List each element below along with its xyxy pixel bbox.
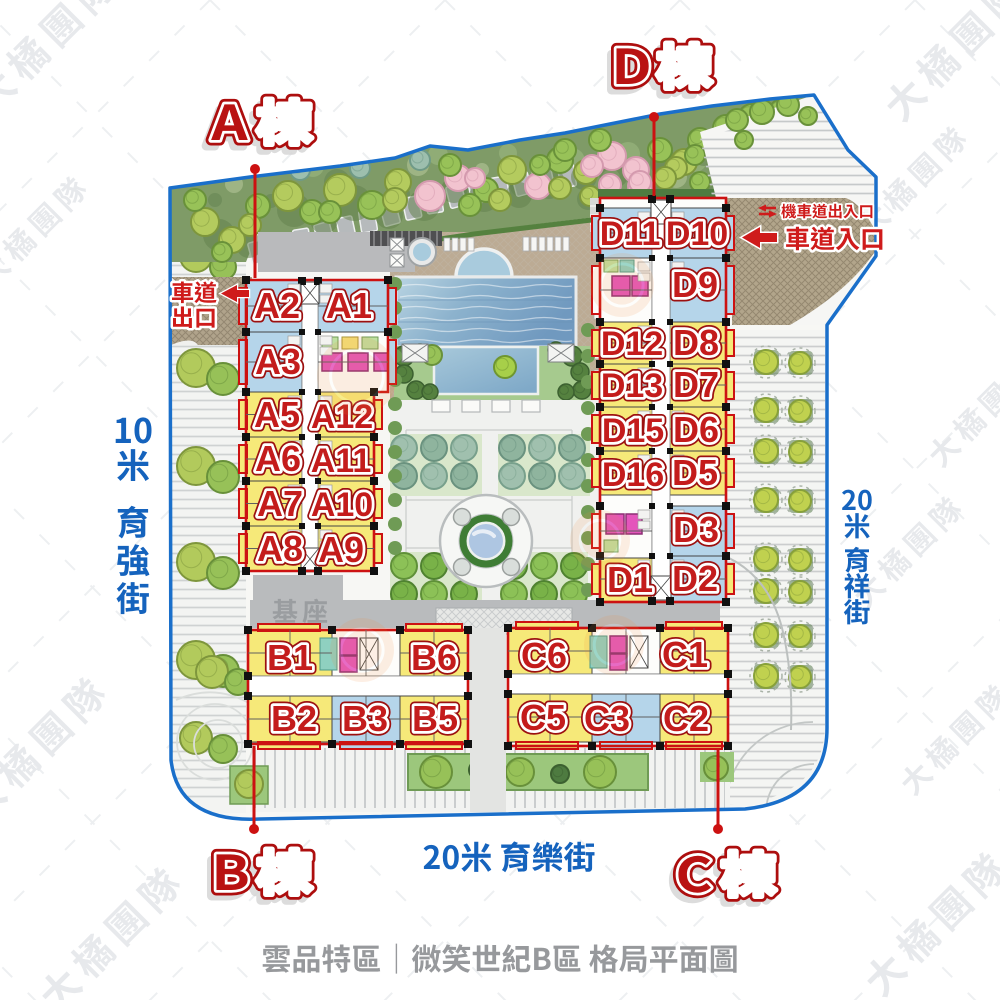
svg-text:D3: D3 [673,509,719,550]
svg-text:D2: D2 [672,558,718,599]
svg-text:D13: D13 [601,367,663,405]
svg-text:A10: A10 [311,486,373,524]
svg-text:D11: D11 [600,215,661,253]
svg-text:D16: D16 [602,456,664,494]
svg-text:D7: D7 [673,364,719,405]
svg-text:B3: B3 [342,698,388,739]
svg-text:D15: D15 [602,412,664,450]
svg-text:A2: A2 [254,285,300,326]
svg-text:B1: B1 [267,637,313,678]
svg-text:A3: A3 [255,341,301,382]
svg-text:A5: A5 [254,394,300,435]
svg-text:C6: C6 [521,635,567,676]
svg-text:A6: A6 [255,438,301,479]
svg-text:A7: A7 [257,483,303,524]
svg-text:D5: D5 [672,452,718,493]
svg-text:C3: C3 [584,698,630,739]
svg-text:D10: D10 [666,215,728,253]
svg-text:B2: B2 [271,698,317,739]
svg-text:C2: C2 [663,698,709,739]
svg-text:D6: D6 [673,409,719,450]
svg-text:C5: C5 [520,697,566,738]
svg-text:D12: D12 [601,325,663,363]
svg-text:D8: D8 [673,322,719,363]
svg-text:D9: D9 [672,264,718,305]
svg-text:A11: A11 [311,442,372,480]
svg-text:B6: B6 [411,637,457,678]
svg-text:C1: C1 [662,634,708,675]
svg-text:A1: A1 [326,285,372,326]
svg-text:B5: B5 [412,698,458,739]
svg-text:A8: A8 [257,528,303,569]
svg-text:A9: A9 [318,529,364,570]
